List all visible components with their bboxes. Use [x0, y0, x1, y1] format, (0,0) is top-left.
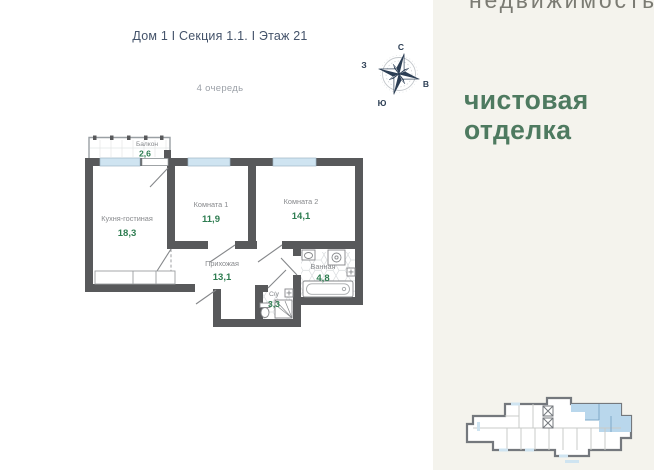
kitchen-counter: [95, 271, 175, 284]
apartment-floorplan: Балкон 2,6 Кухня-гостиная 18,3 Комната 1…: [78, 126, 374, 340]
plan-location-title: Дом 1 I Секция 1.1. I Этаж 21: [110, 29, 330, 43]
compass-north-label: С: [398, 42, 404, 52]
room-label-hallway: Прихожая: [205, 259, 239, 268]
room-area-wc: 3,3: [268, 299, 280, 309]
windows: [100, 158, 316, 166]
room-label-balcony: Балкон: [136, 141, 158, 148]
room-label-bathroom: Ванная: [311, 262, 336, 271]
room-label-kitchen: Кухня-гостиная: [101, 214, 153, 223]
room-label-wc: С/у: [269, 291, 280, 298]
building-plan-thumbnail: [459, 392, 643, 466]
room-area-room1: 11,9: [202, 214, 220, 225]
compass-south-label: Ю: [378, 98, 387, 108]
finish-type-heading: чистовая отделка: [464, 85, 589, 145]
finish-line-1: чистовая: [464, 85, 589, 115]
room-area-hallway: 13,1: [213, 272, 232, 283]
brand-wordmark: недвижимость: [469, 0, 654, 14]
room-area-balcony: 2,6: [139, 149, 151, 159]
compass-star-icon: [374, 49, 425, 100]
room-label-room1: Комната 1: [194, 200, 229, 209]
room-area-kitchen: 18,3: [118, 228, 137, 239]
walls: [85, 158, 363, 327]
compass-east-label: В: [423, 79, 429, 89]
finish-line-2: отделка: [464, 115, 589, 145]
room-area-room2: 14,1: [292, 211, 311, 222]
room-label-room2: Комната 2: [284, 197, 319, 206]
real-estate-floorplan-page: { "page": { "title": "Дом 1 I Секция 1.1…: [0, 0, 654, 470]
room-area-bathroom: 4,8: [316, 273, 329, 284]
compass-west-label: З: [361, 60, 366, 70]
construction-phase-label: 4 очередь: [160, 83, 280, 94]
